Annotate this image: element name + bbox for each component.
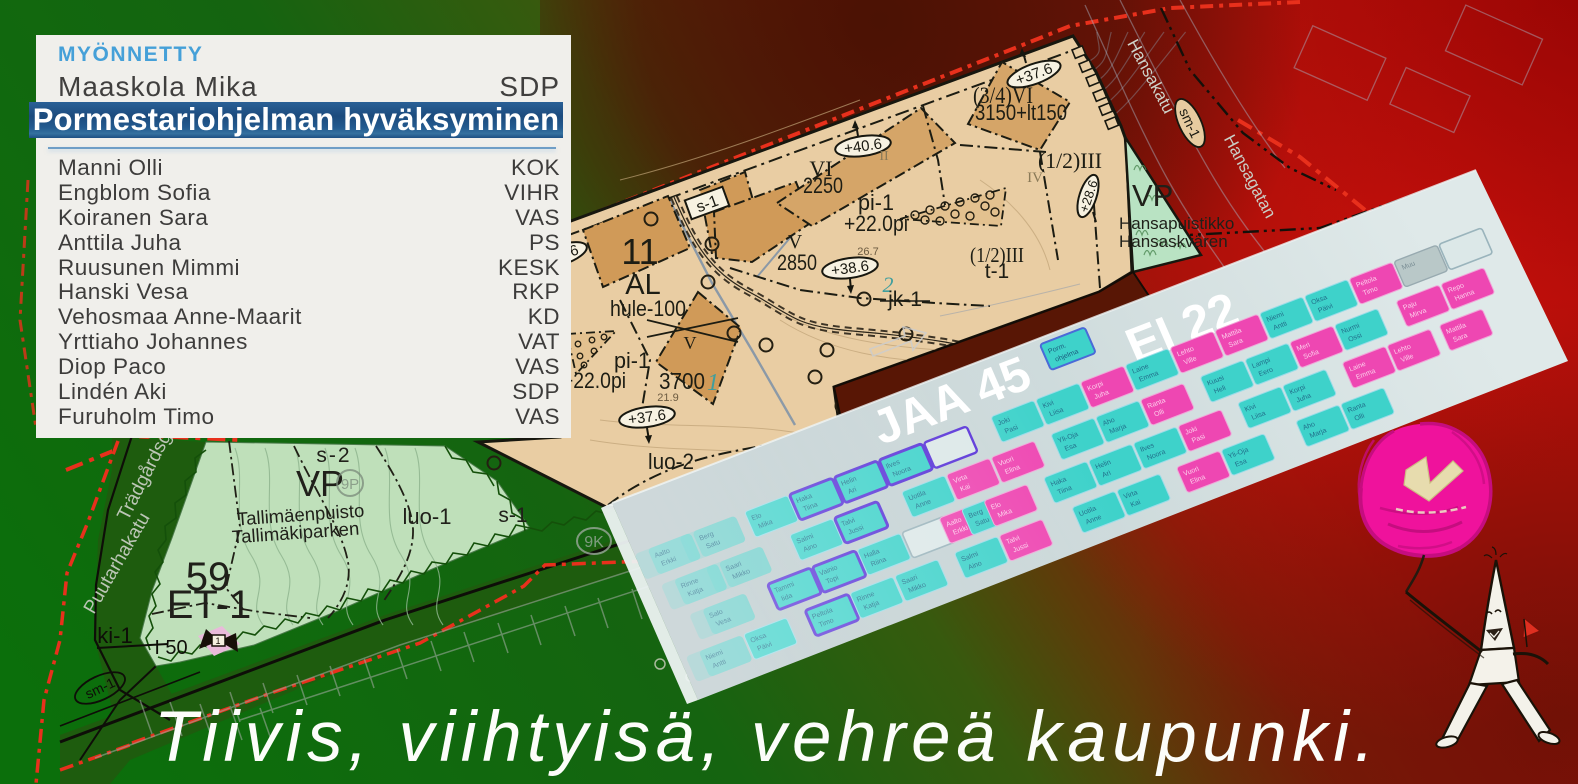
- svg-text:2850: 2850: [777, 250, 817, 275]
- svg-text:II: II: [879, 149, 889, 164]
- svg-text:+22.0pi: +22.0pi: [844, 211, 908, 236]
- svg-text:V: V: [684, 333, 697, 353]
- svg-text:s-1: s-1: [498, 504, 527, 527]
- svg-text:t-1: t-1: [985, 260, 1010, 283]
- svg-text:26.7: 26.7: [857, 246, 878, 258]
- svg-text:VP: VP: [1132, 178, 1173, 213]
- svg-text:(1/2)III: (1/2)III: [1038, 148, 1102, 173]
- svg-text:9K: 9K: [584, 534, 604, 551]
- svg-text:jk-1: jk-1: [887, 288, 922, 311]
- svg-text:Hansapuistikko: Hansapuistikko: [1119, 214, 1234, 233]
- svg-text:21.9: 21.9: [657, 392, 678, 404]
- svg-text:2250: 2250: [803, 173, 843, 198]
- svg-text:luo-1: luo-1: [403, 504, 452, 529]
- svg-text:IV: IV: [1027, 170, 1043, 186]
- svg-text:I 50: I 50: [154, 637, 187, 659]
- svg-text:+22.0pi: +22.0pi: [562, 368, 626, 393]
- svg-text:3150+lt150: 3150+lt150: [975, 100, 1067, 125]
- svg-text:ki-1: ki-1: [97, 623, 132, 648]
- svg-text:1: 1: [215, 636, 220, 646]
- svg-text:11: 11: [621, 231, 658, 272]
- svg-text:1: 1: [707, 370, 719, 396]
- svg-text:Hansaskvären: Hansaskvären: [1119, 232, 1228, 251]
- svg-text:3700: 3700: [659, 368, 705, 394]
- svg-text:hule-100: hule-100: [610, 296, 686, 321]
- svg-text:luo-2: luo-2: [648, 449, 694, 474]
- svg-text:ET-1: ET-1: [167, 583, 251, 627]
- svg-text:9P: 9P: [341, 476, 359, 493]
